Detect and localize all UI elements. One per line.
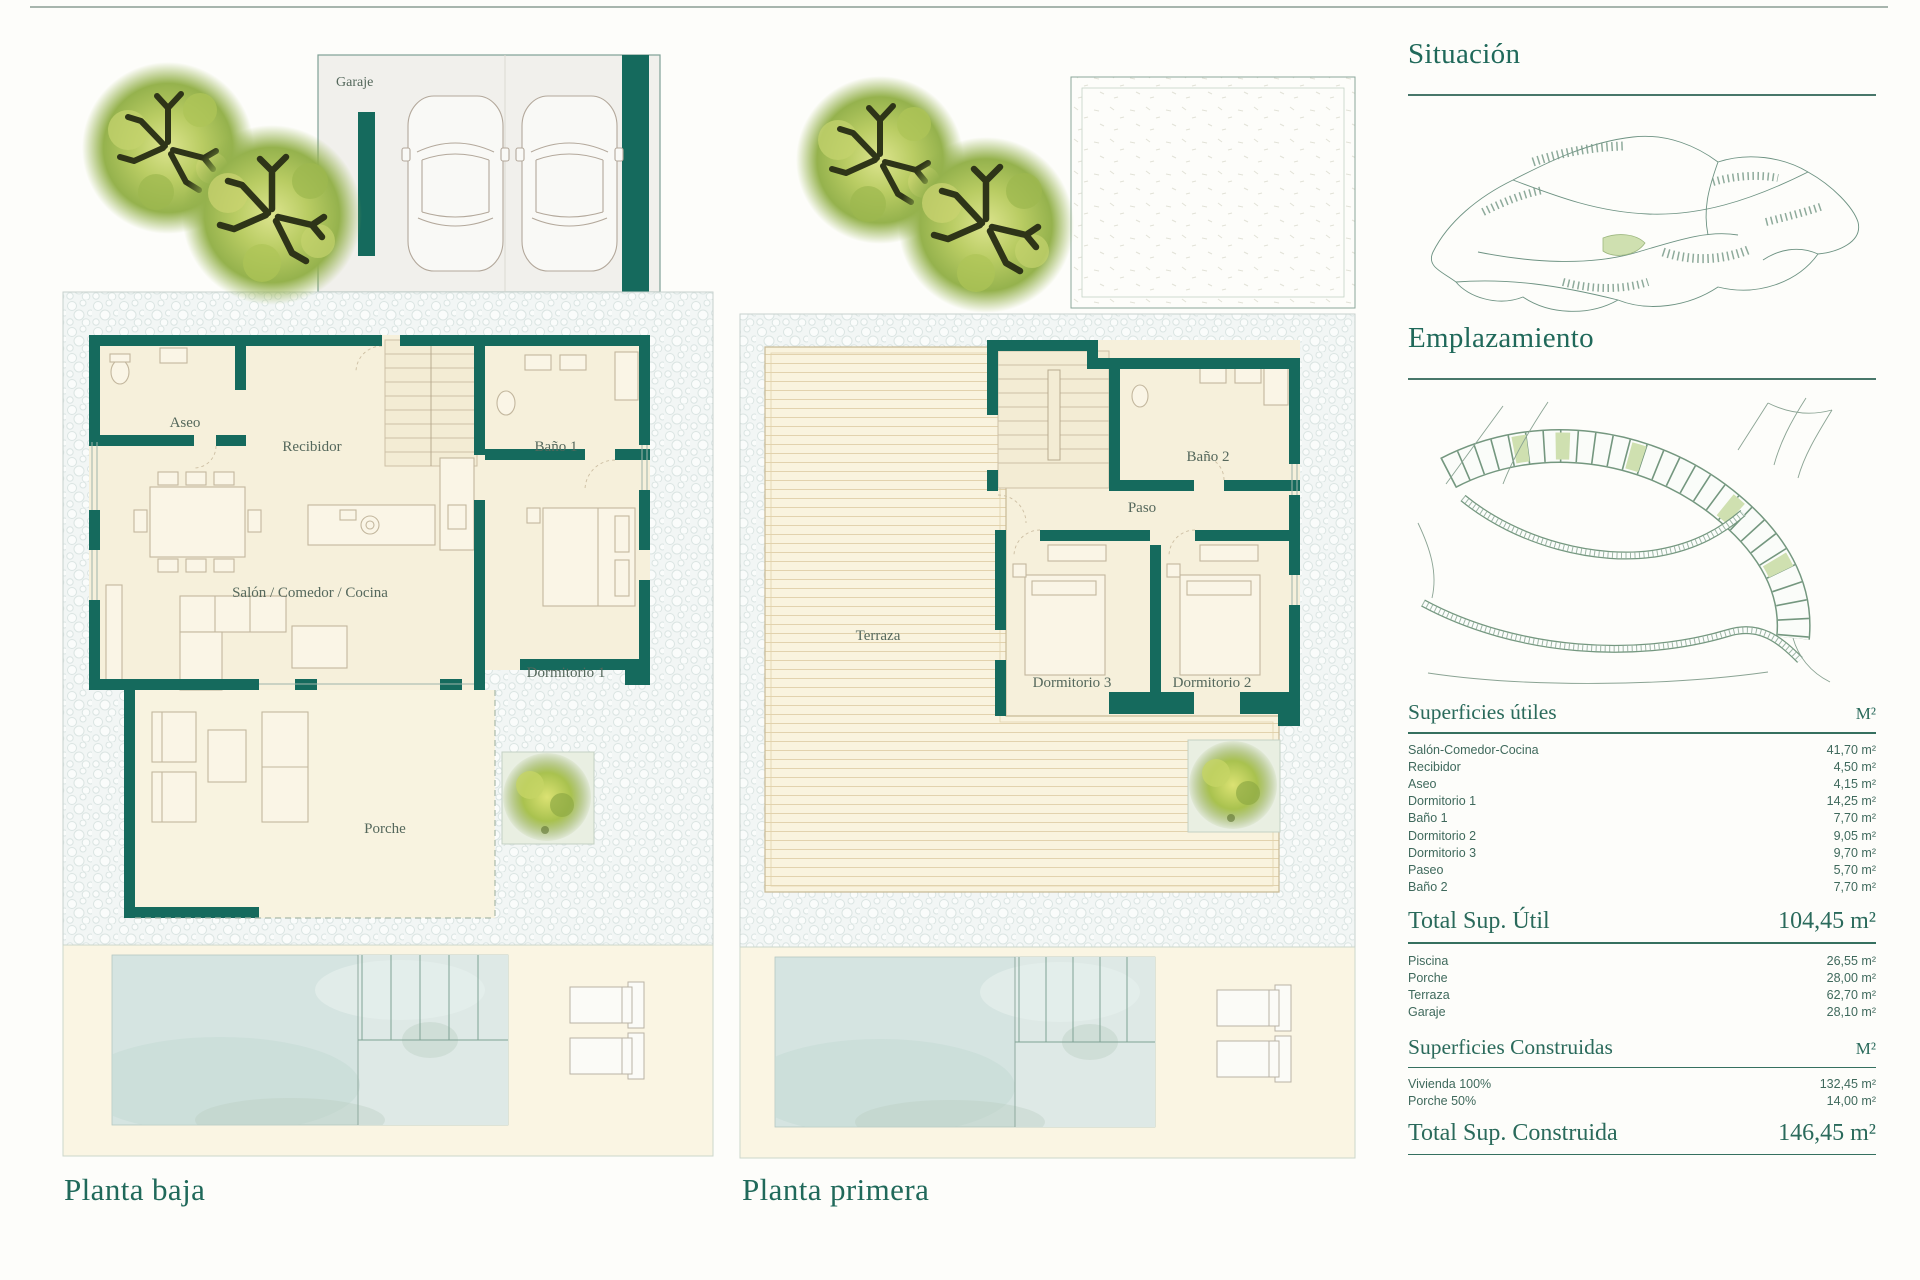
first-floor-plan-drawing: Terraza Baño 2 Paso Dormitorio 3 Dormito… bbox=[730, 40, 1390, 1190]
table-row: Vivienda 100%132,45 m² bbox=[1408, 1076, 1876, 1093]
first-pool-panel bbox=[740, 947, 1355, 1158]
sidebar: Situación Emplazamiento bbox=[1408, 0, 1876, 1280]
table-row: Salón-Comedor-Cocina41,70 m² bbox=[1408, 742, 1876, 759]
total-useful-value: 104,45 m² bbox=[1778, 908, 1876, 935]
table-row: Porche 50%14,00 m² bbox=[1408, 1093, 1876, 1110]
total-built-row: Total Sup. Construida 146,45 m² bbox=[1408, 1120, 1876, 1147]
table-row: Terraza62,70 m² bbox=[1408, 987, 1876, 1004]
table-row: Dormitorio 39,70 m² bbox=[1408, 845, 1876, 862]
total-built-rule bbox=[1408, 1154, 1876, 1156]
room-label-dormitorio3: Dormitorio 3 bbox=[1033, 675, 1112, 691]
room-label-porche: Porche bbox=[364, 821, 406, 837]
roof-box bbox=[1071, 77, 1355, 308]
emplazamiento-map bbox=[1408, 388, 1876, 688]
built-title: Superficies Construidas bbox=[1408, 1035, 1613, 1060]
ground-plan-title: Planta baja bbox=[64, 1172, 205, 1208]
total-useful-row: Total Sup. Útil 104,45 m² bbox=[1408, 908, 1876, 935]
table-row: Baño 17,70 m² bbox=[1408, 810, 1876, 827]
room-label-aseo: Aseo bbox=[170, 415, 201, 431]
table-row: Dormitorio 29,05 m² bbox=[1408, 828, 1876, 845]
table-row: Baño 27,70 m² bbox=[1408, 879, 1876, 896]
table-row: Paseo5,70 m² bbox=[1408, 862, 1876, 879]
useful-rows: Salón-Comedor-Cocina41,70 m² Recibidor4,… bbox=[1408, 734, 1876, 897]
room-label-terraza: Terraza bbox=[856, 628, 901, 644]
table-row: Aseo4,15 m² bbox=[1408, 776, 1876, 793]
built-unit: M² bbox=[1856, 1039, 1876, 1059]
useful-title: Superficies útiles bbox=[1408, 700, 1557, 725]
ground-pool-panel bbox=[63, 945, 713, 1156]
useful-unit: M² bbox=[1856, 704, 1876, 724]
emplazamiento-title: Emplazamiento bbox=[1408, 322, 1594, 355]
useful-surfaces-header: Superficies útiles M² bbox=[1408, 700, 1876, 725]
first-plan-title: Planta primera bbox=[742, 1172, 929, 1208]
room-label-salon: Salón / Comedor / Cocina bbox=[232, 585, 388, 601]
situacion-map bbox=[1408, 100, 1876, 322]
situacion-rule bbox=[1408, 94, 1876, 96]
annex-rows: Piscina26,55 m² Porche28,00 m² Terraza62… bbox=[1408, 953, 1876, 1022]
situacion-title: Situación bbox=[1408, 38, 1520, 71]
table-row: Recibidor4,50 m² bbox=[1408, 759, 1876, 776]
total-useful-rule bbox=[1408, 942, 1876, 944]
garage-wall bbox=[622, 55, 649, 292]
first-house: Terraza Baño 2 Paso Dormitorio 3 Dormito… bbox=[765, 340, 1300, 892]
emplazamiento-rule bbox=[1408, 378, 1876, 380]
ground-house: Aseo Recibidor Baño 1 Salón / Comedor / … bbox=[89, 335, 650, 918]
surfaces-tables: Superficies útiles M² Salón-Comedor-Coci… bbox=[1408, 700, 1876, 1155]
built-rows: Vivienda 100%132,45 m² Porche 50%14,00 m… bbox=[1408, 1068, 1876, 1110]
table-row: Porche28,00 m² bbox=[1408, 970, 1876, 987]
tree-icon bbox=[796, 76, 1074, 313]
garage-label: Garaje bbox=[336, 75, 373, 90]
situacion-highlight-plot bbox=[1603, 235, 1645, 256]
garage-block: Garaje bbox=[318, 55, 660, 292]
table-row: Dormitorio 114,25 m² bbox=[1408, 793, 1876, 810]
room-label-dormitorio1: Dormitorio 1 bbox=[527, 665, 606, 681]
built-surfaces-header: Superficies Construidas M² bbox=[1408, 1035, 1876, 1060]
bush-icon bbox=[1188, 740, 1280, 832]
table-row: Piscina26,55 m² bbox=[1408, 953, 1876, 970]
table-row: Garaje28,10 m² bbox=[1408, 1004, 1876, 1021]
total-built-value: 146,45 m² bbox=[1778, 1120, 1876, 1147]
total-built-label: Total Sup. Construida bbox=[1408, 1120, 1618, 1147]
stairs bbox=[385, 340, 477, 466]
room-label-bano1: Baño 1 bbox=[535, 439, 578, 455]
bush-icon bbox=[502, 752, 594, 844]
stairs bbox=[998, 351, 1109, 488]
room-label-dormitorio2: Dormitorio 2 bbox=[1173, 675, 1252, 691]
room-label-paso: Paso bbox=[1128, 500, 1156, 516]
ground-floor-plan-drawing: Garaje bbox=[40, 40, 730, 1190]
room-label-bano2: Baño 2 bbox=[1187, 449, 1230, 465]
room-label-recibidor: Recibidor bbox=[282, 439, 341, 455]
total-useful-label: Total Sup. Útil bbox=[1408, 908, 1550, 935]
